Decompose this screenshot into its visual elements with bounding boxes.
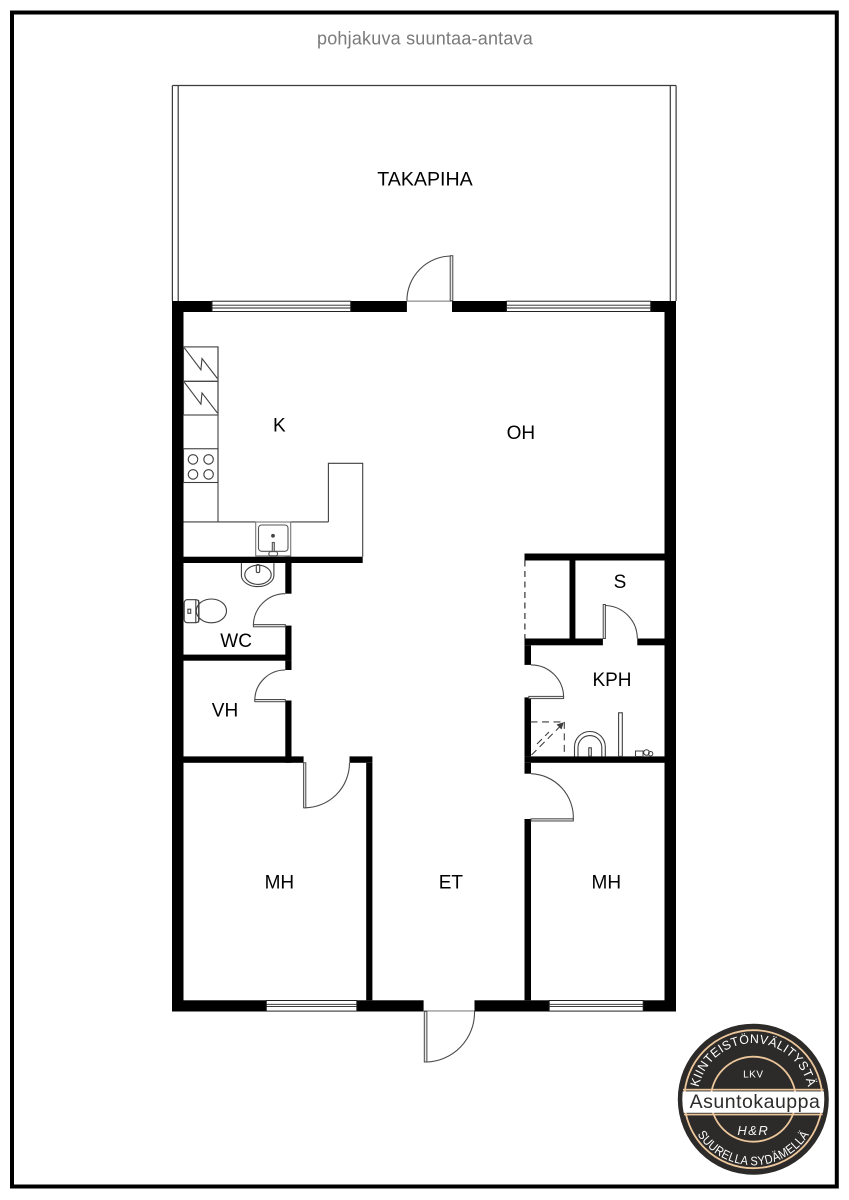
- svg-text:K: K: [273, 416, 286, 437]
- svg-text:VH: VH: [212, 701, 238, 722]
- svg-text:Asuntokauppa: Asuntokauppa: [690, 1091, 821, 1113]
- svg-text:LKV: LKV: [743, 1070, 763, 1081]
- svg-text:WC: WC: [220, 631, 252, 652]
- svg-text:MH: MH: [592, 872, 622, 893]
- svg-text:TAKAPIHA: TAKAPIHA: [377, 168, 473, 190]
- svg-text:MH: MH: [265, 872, 295, 893]
- svg-text:pohjakuva suuntaa-antava: pohjakuva suuntaa-antava: [317, 29, 534, 49]
- svg-text:H&R: H&R: [737, 1123, 769, 1138]
- svg-text:KPH: KPH: [592, 670, 631, 691]
- svg-text:S: S: [614, 572, 627, 593]
- svg-text:OH: OH: [507, 423, 536, 444]
- svg-text:ET: ET: [439, 872, 464, 893]
